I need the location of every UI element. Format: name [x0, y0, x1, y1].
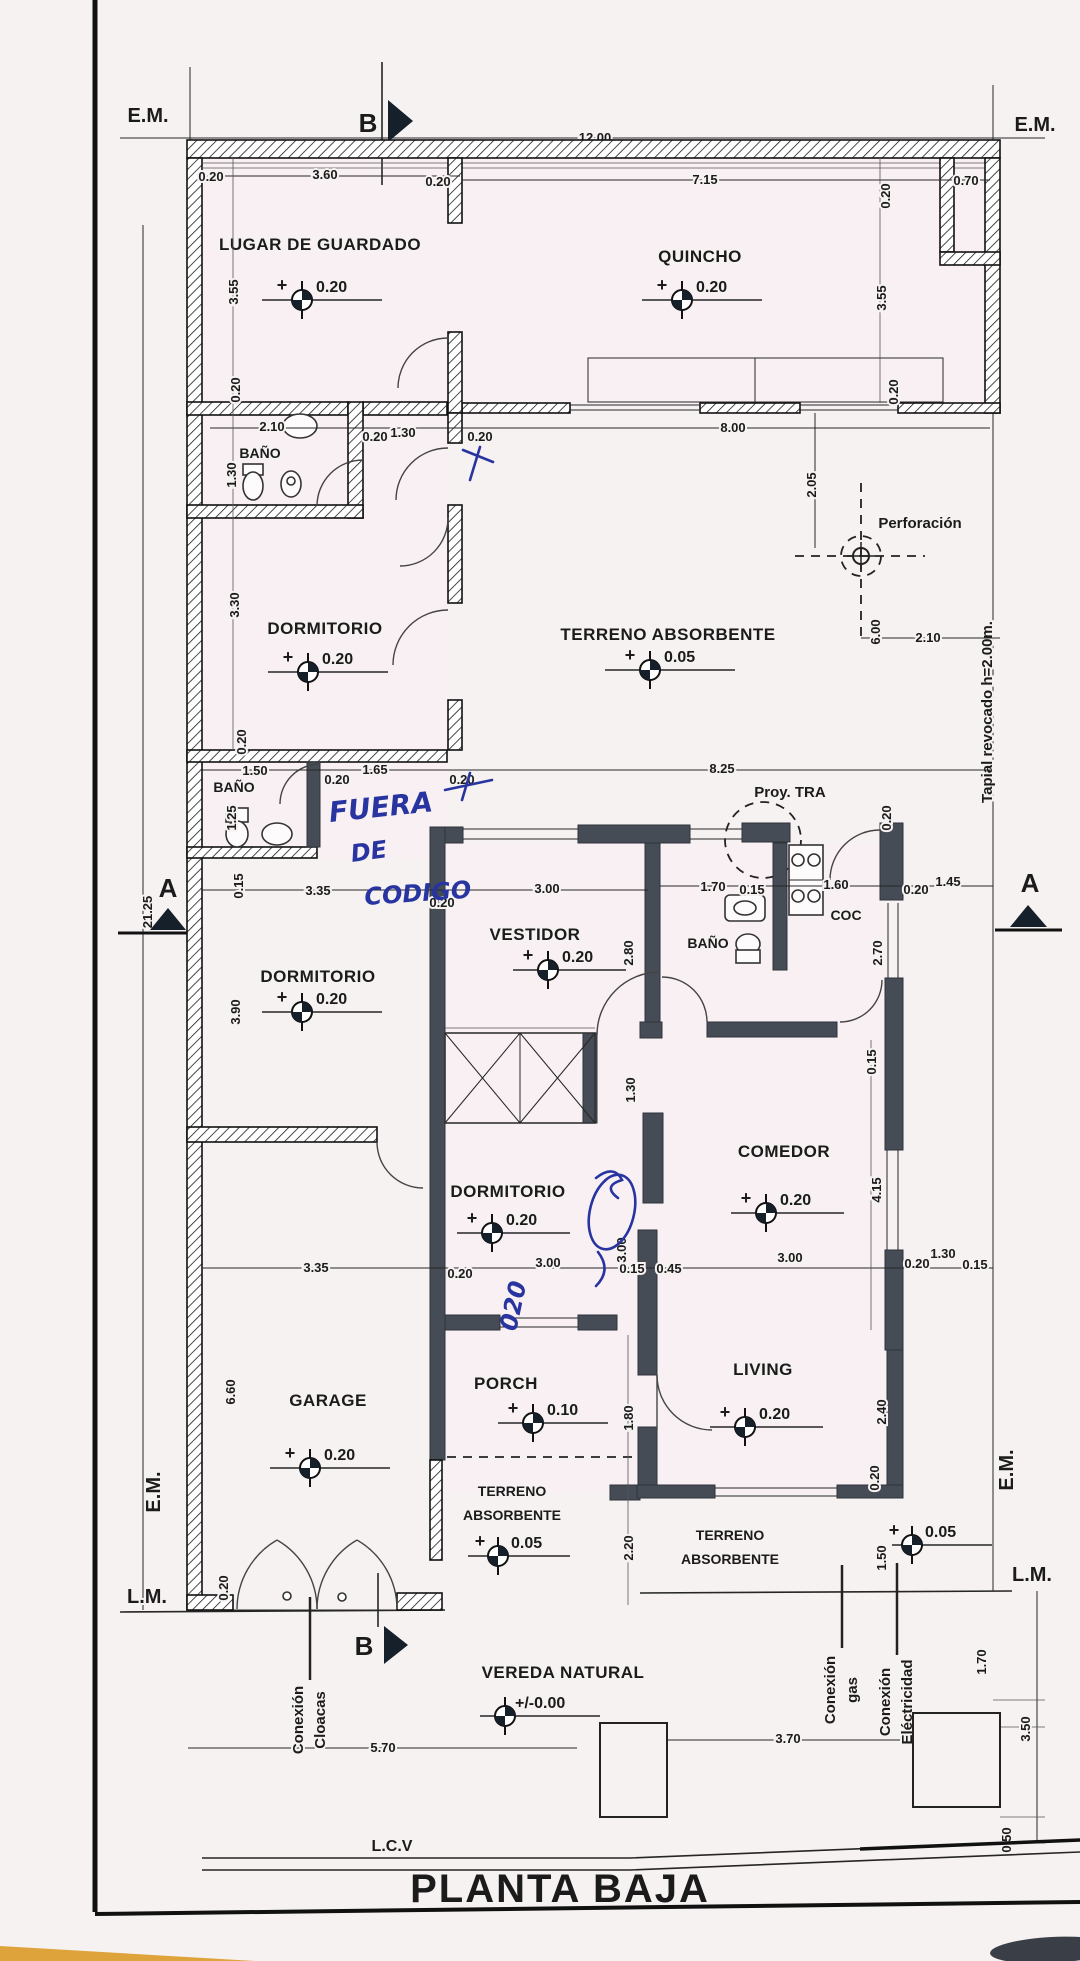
svg-text:0.20: 0.20 [780, 1192, 811, 1209]
svg-text:1.30: 1.30 [224, 462, 239, 487]
svg-text:2.10: 2.10 [259, 419, 284, 434]
svg-text:1.45: 1.45 [935, 874, 960, 889]
svg-text:0.15: 0.15 [864, 1049, 879, 1074]
svg-text:0.20: 0.20 [696, 279, 727, 296]
room-label-porch: PORCH [474, 1374, 538, 1393]
svg-text:1.50: 1.50 [874, 1545, 889, 1570]
svg-text:Cloacas: Cloacas [312, 1691, 329, 1749]
svg-text:3.90: 3.90 [228, 999, 243, 1024]
svg-text:0.45: 0.45 [656, 1261, 681, 1276]
svg-text:+: + [657, 275, 668, 295]
svg-text:3.55: 3.55 [226, 279, 241, 304]
svg-text:Conexión: Conexión [822, 1656, 839, 1724]
svg-text:0.20: 0.20 [362, 429, 387, 444]
svg-text:4.15: 4.15 [869, 1177, 884, 1202]
svg-text:0.15: 0.15 [739, 882, 764, 897]
svg-text:+: + [277, 987, 288, 1007]
svg-text:0.05: 0.05 [664, 649, 695, 666]
svg-text:1.60: 1.60 [823, 877, 848, 892]
svg-text:+: + [625, 645, 636, 665]
sidewalk-box-1 [600, 1723, 667, 1817]
svg-text:2.20: 2.20 [621, 1535, 636, 1560]
vereda-label: VEREDA NATURAL [482, 1663, 645, 1682]
sidewalk-box-2 [913, 1713, 1000, 1807]
svg-text:3.55: 3.55 [874, 285, 889, 310]
dim-label: 21.25 [140, 896, 155, 929]
svg-text:2.05: 2.05 [804, 472, 819, 497]
svg-text:gas: gas [844, 1677, 861, 1703]
svg-text:3.00: 3.00 [777, 1250, 802, 1265]
lm-label-right: L.M. [1012, 1564, 1052, 1586]
room-label-terreno-sw-2: ABSORBENTE [463, 1507, 561, 1523]
svg-text:B: B [359, 108, 378, 138]
svg-text:0.20: 0.20 [879, 805, 894, 830]
svg-text:+: + [285, 1443, 296, 1463]
svg-text:1.25: 1.25 [224, 805, 239, 830]
room-label-banio1: BAÑO [239, 444, 280, 461]
room-label-banio3: BAÑO [687, 934, 728, 951]
svg-text:0.20: 0.20 [324, 772, 349, 787]
svg-text:3.35: 3.35 [305, 883, 330, 898]
svg-text:3.50: 3.50 [1018, 1716, 1033, 1741]
svg-text:+: + [467, 1208, 478, 1228]
svg-text:1.70: 1.70 [974, 1649, 989, 1674]
svg-text:3.00: 3.00 [534, 881, 559, 896]
svg-text:0.20: 0.20 [506, 1212, 537, 1229]
room-label-dormitorio3: DORMITORIO [450, 1182, 565, 1201]
svg-text:3.00: 3.00 [535, 1255, 560, 1270]
svg-text:+/-0.00: +/-0.00 [515, 1695, 565, 1712]
svg-text:0.20: 0.20 [425, 174, 450, 189]
room-label-garage: GARAGE [289, 1391, 367, 1410]
svg-text:0.20: 0.20 [216, 1575, 231, 1600]
floor-plan-page: E.M. E.M. E.M. E.M. L.M. L.M. 12.00 21.2… [0, 0, 1080, 1961]
floor-plan-drawing: E.M. E.M. E.M. E.M. L.M. L.M. 12.00 21.2… [0, 0, 1080, 1961]
svg-text:1.30: 1.30 [930, 1246, 955, 1261]
drawing-title: PLANTA BAJA [410, 1867, 710, 1911]
svg-text:0.50: 0.50 [999, 1827, 1014, 1852]
svg-text:8.00: 8.00 [720, 420, 745, 435]
proy-tra-note: Proy. TRA [754, 784, 826, 801]
em-label-top-right: E.M. [1014, 114, 1055, 136]
svg-text:3.70: 3.70 [775, 1731, 800, 1746]
room-label-dormitorio2: DORMITORIO [260, 967, 375, 986]
svg-text:0.20: 0.20 [562, 949, 593, 966]
svg-text:1.50: 1.50 [242, 763, 267, 778]
svg-text:1.30: 1.30 [390, 425, 415, 440]
svg-text:0.20: 0.20 [324, 1447, 355, 1464]
svg-text:0.20: 0.20 [234, 729, 249, 754]
svg-text:1.80: 1.80 [621, 1405, 636, 1430]
svg-text:2.10: 2.10 [915, 630, 940, 645]
svg-text:Conexión: Conexión [290, 1686, 307, 1754]
room-label-lugar: LUGAR DE GUARDADO [219, 235, 421, 254]
svg-text:6.60: 6.60 [223, 1379, 238, 1404]
room-label-terreno-s-1: TERRENO [696, 1527, 765, 1543]
lm-label-left: L.M. [127, 1586, 167, 1608]
room-label-living: LIVING [733, 1360, 793, 1379]
svg-text:0.20: 0.20 [886, 379, 901, 404]
svg-text:+: + [508, 1398, 519, 1418]
lcv-label: L.C.V [372, 1838, 413, 1855]
svg-text:0.20: 0.20 [316, 279, 347, 296]
svg-text:+: + [720, 1402, 731, 1422]
svg-text:2.40: 2.40 [874, 1399, 889, 1424]
svg-text:0.20: 0.20 [759, 1406, 790, 1423]
svg-text:0.10: 0.10 [547, 1402, 578, 1419]
svg-text:+: + [523, 945, 534, 965]
svg-text:8.25: 8.25 [709, 761, 734, 776]
room-label-cocina: COC [830, 907, 861, 923]
svg-text:0.20: 0.20 [322, 651, 353, 668]
em-label-top-left: E.M. [127, 105, 168, 127]
svg-text:0.20: 0.20 [228, 377, 243, 402]
svg-text:7.15: 7.15 [692, 172, 717, 187]
svg-text:+: + [283, 647, 294, 667]
svg-text:A: A [1021, 868, 1040, 898]
svg-text:B: B [355, 1631, 374, 1661]
svg-text:+: + [475, 1531, 486, 1551]
kitchen-fixtures [789, 845, 823, 915]
svg-text:0.20: 0.20 [447, 1266, 472, 1281]
svg-text:2.80: 2.80 [621, 940, 636, 965]
svg-text:2.70: 2.70 [870, 940, 885, 965]
svg-text:6.00: 6.00 [868, 619, 883, 644]
svg-text:0.20: 0.20 [903, 882, 928, 897]
room-label-terreno-s-2: ABSORBENTE [681, 1551, 779, 1567]
scan-smudge [989, 1934, 1080, 1961]
room-label-dormitorio1: DORMITORIO [267, 619, 382, 638]
room-label-comedor: COMEDOR [738, 1142, 830, 1161]
svg-text:0.05: 0.05 [925, 1524, 956, 1541]
em-label-left: E.M. [143, 1471, 165, 1512]
svg-text:5.70: 5.70 [370, 1740, 395, 1755]
svg-text:1.70: 1.70 [700, 879, 725, 894]
room-label-banio2: BAÑO [213, 778, 254, 795]
svg-text:0.20: 0.20 [878, 183, 893, 208]
em-label-right: E.M. [996, 1449, 1018, 1490]
svg-text:+: + [741, 1188, 752, 1208]
svg-text:0.20: 0.20 [198, 169, 223, 184]
svg-text:0.05: 0.05 [511, 1535, 542, 1552]
svg-text:0.20: 0.20 [904, 1256, 929, 1271]
room-label-terreno-sw-1: TERRENO [478, 1483, 547, 1499]
perforacion-note: Perforación [878, 515, 961, 532]
room-label-quincho: QUINCHO [658, 247, 742, 266]
svg-text:DE: DE [349, 835, 389, 868]
svg-text:0.15: 0.15 [962, 1257, 987, 1272]
svg-text:0.15: 0.15 [231, 873, 246, 898]
scan-yellow-strip [0, 1946, 255, 1961]
svg-text:3.60: 3.60 [312, 167, 337, 182]
svg-text:Conexión: Conexión [877, 1668, 894, 1736]
svg-text:+: + [277, 275, 288, 295]
room-label-vestidor: VESTIDOR [490, 925, 581, 944]
svg-text:A: A [159, 873, 178, 903]
svg-text:3.30: 3.30 [227, 592, 242, 617]
svg-text:0.20: 0.20 [867, 1465, 882, 1490]
svg-text:1.30: 1.30 [623, 1077, 638, 1102]
svg-text:+: + [889, 1520, 900, 1540]
tapial-note: Tapial revocado h=2.00m. [979, 621, 996, 803]
svg-text:0.20: 0.20 [316, 991, 347, 1008]
svg-text:1.65: 1.65 [362, 762, 387, 777]
svg-text:0.20: 0.20 [467, 429, 492, 444]
svg-text:3.35: 3.35 [303, 1260, 328, 1275]
svg-text:0.70: 0.70 [953, 173, 978, 188]
room-label-terreno-centro: TERRENO ABSORBENTE [560, 625, 775, 644]
